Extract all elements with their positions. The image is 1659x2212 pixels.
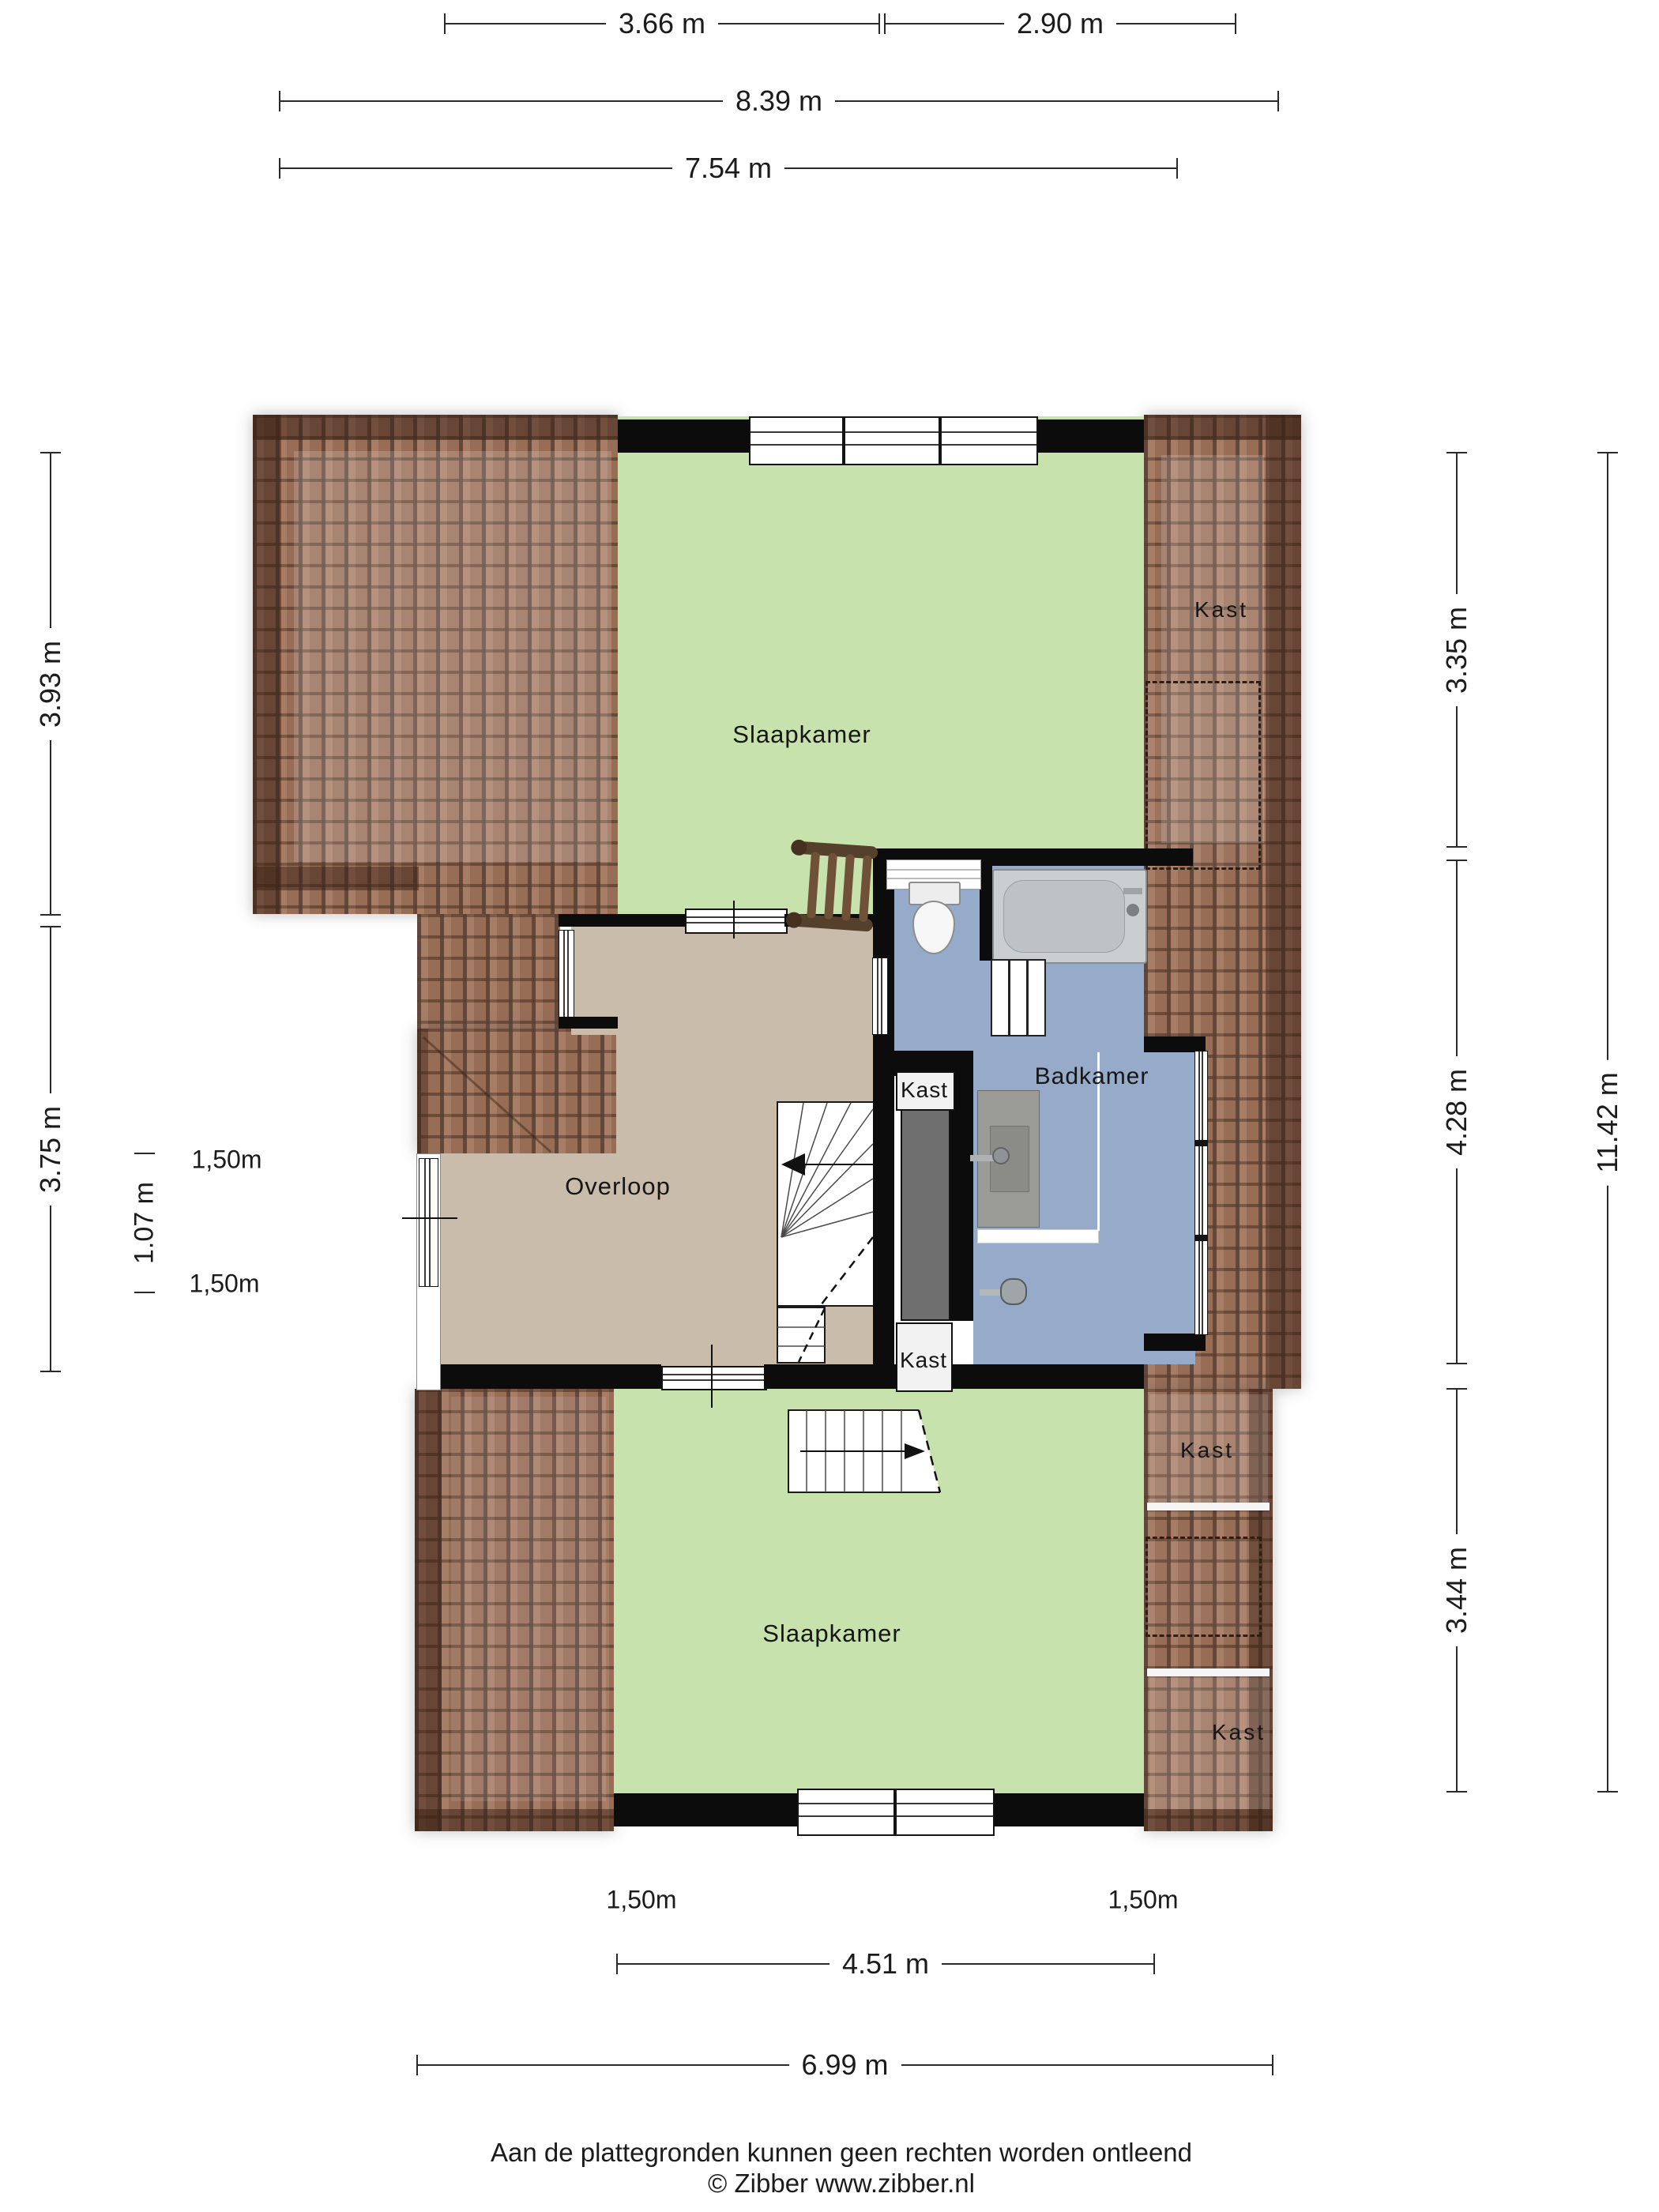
dimension-tick [134,1292,155,1293]
bathtub-inner [1003,880,1125,953]
dimension-label: 11.42 m [1591,1059,1624,1185]
window-glazing [687,922,786,924]
height-line-label: 1,50m [190,1270,260,1299]
closet-dashed-outline [1145,681,1261,870]
dimension-tick [40,452,61,453]
dimension-tick [134,1153,155,1154]
dimension-tick [40,926,61,927]
wall-middle-row-b [764,1364,897,1389]
window-landing-bottom [661,1366,767,1390]
roof-eave [415,1809,614,1831]
label-closet-shaft-upper: Kast [901,1078,948,1103]
dimension-tick [616,1954,618,1974]
window-mullion [842,418,845,464]
window-landing-top [685,908,788,934]
dimension-tick [1272,2055,1273,2075]
wall-top-left [618,419,749,453]
roof-inner-panel [451,1397,606,1801]
shower-screen-bar [977,1229,1099,1243]
ladder-rung [824,852,837,920]
roof-inner-panel [294,451,611,862]
dimension-tick [1446,1388,1467,1390]
dimension-tick [1446,846,1467,848]
window-glazing [563,931,565,1018]
dimension-tick [279,158,280,179]
duct-shaft [901,1108,950,1321]
closet-dashed-outline [1145,1537,1262,1637]
dimension-label: 3.93 m [34,627,67,739]
label-closet-shaft-lower: Kast [900,1348,947,1373]
dimension-tick [1277,91,1279,111]
roof-eave [1144,1809,1273,1831]
dimension-tick [878,13,880,34]
window-landing-bath-glass [872,957,888,1035]
roof-eave [253,867,419,890]
roof-eave [417,1029,428,1153]
dimension-label: 4.51 m [829,1947,942,1981]
window-bedroom-bottom [797,1789,995,1836]
roof-bottom-left [415,1389,614,1831]
window-mullion [1195,1140,1207,1146]
dimension-tick [1446,1363,1467,1364]
wall-toilet-right [980,866,992,961]
bathtub-faucet-bar [1123,888,1142,894]
wall-bath-bump-bottom [1144,1334,1206,1351]
dimension-label: 3.44 m [1440,1534,1473,1646]
label-closet-top-right: Kast [1194,597,1248,623]
wall-middle-row-c [950,1364,1144,1389]
window-glazing [881,958,882,1034]
shower-door-panel [991,959,1010,1036]
label-bathroom: Badkamer [1035,1063,1149,1090]
label-closet-right-mid: Kast [1180,1438,1234,1463]
disclaimer-text: Aan de plattegronden kunnen geen rechten… [491,2138,1192,2168]
window-bedroom-top [749,416,1038,465]
dimension-tick [1597,452,1618,453]
dimension-label: 8.39 m [723,85,835,118]
wall-landing-bathroom [873,848,894,1389]
dimension-label: 6.99 m [788,2048,901,2082]
window-center-tick [402,1217,457,1219]
attic-ladder [788,839,878,933]
window-glazing [1202,1051,1203,1334]
stairs-winder [777,1101,875,1307]
window-glazing [687,916,786,918]
label-landing: Overloop [565,1172,671,1201]
window-glazing [663,1374,766,1375]
roof-top-left [253,415,618,914]
window-landing-west [419,1158,438,1287]
closet-shelf-line [1147,1503,1270,1510]
dimension-tick [1446,860,1467,861]
closet-shelf-line [1147,1668,1270,1676]
wall-bottom-right [991,1793,1144,1826]
dimension-label: 2.90 m [1004,7,1116,40]
dimension-label: 3.75 m [34,1093,67,1205]
copyright-text: © Zibber www.zibber.nl [708,2169,975,2199]
dimension-tick [884,13,886,34]
bathtub-faucet [1127,904,1139,916]
dimension-tick [1176,158,1178,179]
ladder-rung [807,852,820,919]
window-glazing [424,1159,426,1286]
window-mullion [1195,1235,1207,1241]
label-bedroom-bottom: Slaapkamer [762,1619,901,1648]
stairs-winder-lower-flight [777,1307,826,1364]
roof-eave [1266,415,1301,1389]
dimension-tick [1446,452,1467,453]
room-bedroom-top [618,416,1144,915]
dimension-label: 4.28 m [1440,1055,1473,1168]
floorplan-page: Slaapkamer Kast Overloop Badkamer Kast K… [0,0,1659,2212]
window-glazing [887,878,980,879]
dimension-tick [444,13,446,34]
window-glazing [567,931,569,1018]
roof-eave [253,415,281,914]
window-bathroom-east [1194,1051,1208,1335]
washbasin-faucet [992,1147,1010,1164]
height-line-label: 1,50m [192,1145,262,1175]
wall-top-right [1035,419,1144,453]
window-mullion [893,1790,897,1834]
dimension-tick [40,914,61,916]
window-mullion [939,418,942,464]
wall-landing-top-left [559,914,685,927]
wall-landing-step [559,1017,618,1029]
dimension-tick [1153,1954,1155,1974]
bathtub [992,869,1147,964]
dimension-tick [279,91,280,111]
ladder-rung [841,854,855,921]
roof-eave [253,415,618,440]
shower-door-panel [1009,959,1028,1036]
dimension-tick [1446,1791,1467,1793]
window-glazing [750,444,1036,446]
ladder-rung [859,856,872,923]
shower-door-panel [1027,959,1046,1036]
dimension-tick [416,2055,418,2075]
wall-shaft-right [947,1076,973,1321]
stairs-straight [788,1409,941,1493]
wall-middle-row-a [417,1364,661,1389]
washbasin-faucet-stem [970,1155,994,1161]
dimension-label: 7.54 m [672,152,784,185]
dimension-label: 3.66 m [606,7,718,40]
window-glazing [887,869,980,871]
window-glazing [877,958,878,1034]
wall-bottom-left [614,1793,797,1826]
window-glazing [1198,1051,1200,1334]
dimension-label: 3.35 m [1440,593,1473,705]
height-line-label: 1,50m [1108,1886,1179,1915]
window-glazing [429,1159,431,1286]
dimension-tick [1597,1791,1618,1793]
window-center-tick [711,1345,713,1408]
roof-left-mid [417,914,560,1029]
window-glazing [750,431,1036,433]
label-closet-right-bottom: Kast [1212,1720,1266,1745]
label-bedroom-top: Slaapkamer [732,720,871,749]
shower-head [1000,1278,1027,1305]
dimension-tick [40,1371,61,1372]
roof-left-lower [417,1029,616,1153]
window-glazing [663,1379,766,1381]
dimension-tick [1235,13,1236,34]
roof-eave [1144,415,1301,440]
height-line-label: 1,50m [607,1886,677,1915]
window-landing-west-upper [559,930,574,1018]
roof-eave [415,1389,442,1831]
dimension-label: 1.07 m [130,1177,160,1269]
window-center-tick [733,901,735,939]
wall-bath-bump-top [1144,1036,1206,1052]
